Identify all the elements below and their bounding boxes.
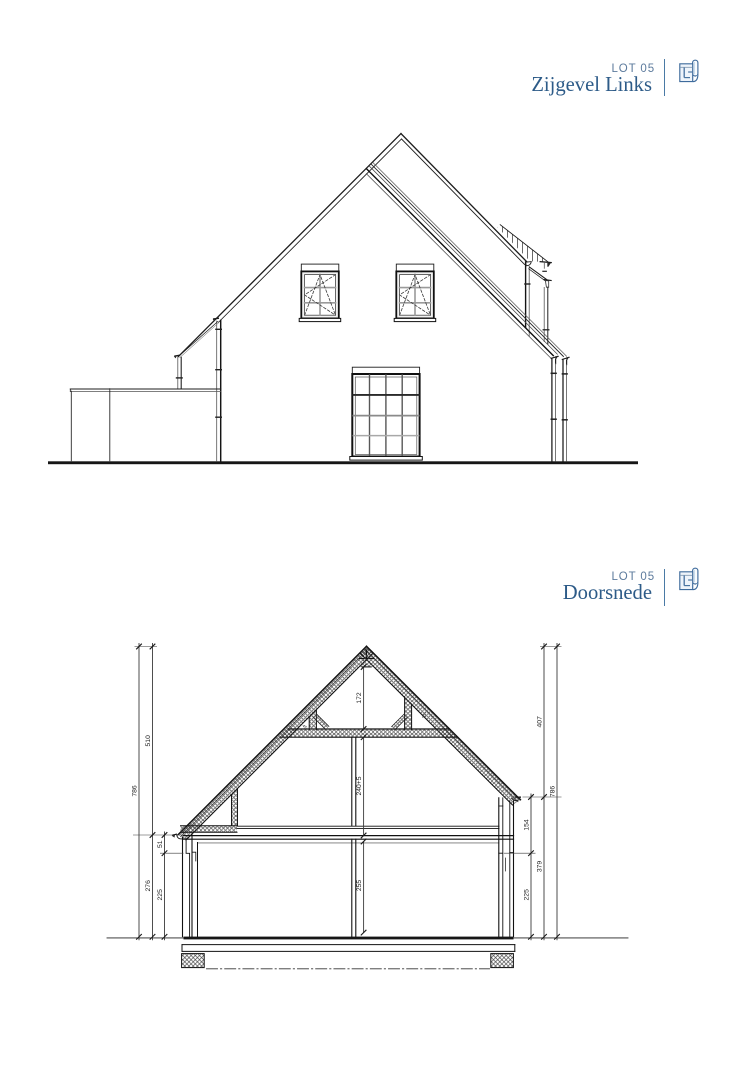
svg-text:276: 276 [145, 880, 152, 892]
svg-text:240+5: 240+5 [356, 776, 363, 795]
svg-text:379: 379 [537, 861, 544, 873]
svg-text:786: 786 [550, 786, 557, 798]
svg-text:510: 510 [145, 735, 152, 747]
svg-text:407: 407 [537, 716, 544, 728]
svg-text:51: 51 [157, 840, 164, 848]
svg-text:225: 225 [524, 889, 531, 901]
svg-text:255: 255 [356, 880, 363, 892]
svg-text:786: 786 [132, 785, 139, 797]
svg-text:172: 172 [356, 692, 363, 704]
svg-text:154: 154 [524, 819, 531, 831]
svg-text:225: 225 [157, 889, 164, 901]
